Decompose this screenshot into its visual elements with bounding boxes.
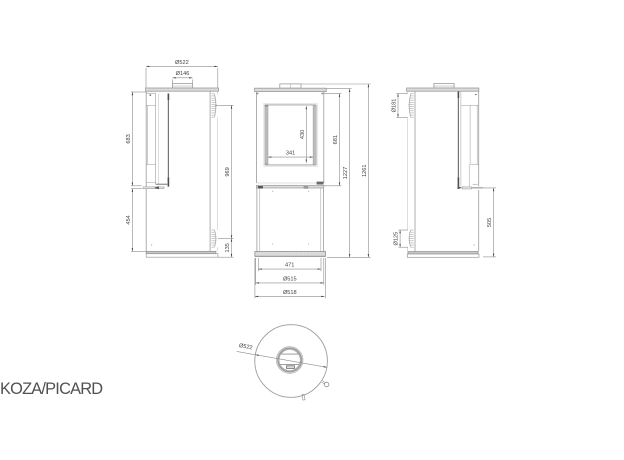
svg-text:430: 430 — [300, 130, 306, 139]
svg-text:341: 341 — [286, 151, 295, 157]
svg-text:454: 454 — [126, 215, 132, 224]
svg-text:Ø515: Ø515 — [283, 276, 297, 282]
svg-text:505: 505 — [487, 218, 493, 227]
svg-text:1227: 1227 — [343, 167, 349, 179]
svg-text:Ø146: Ø146 — [176, 71, 190, 77]
svg-text:Ø518: Ø518 — [283, 290, 297, 296]
svg-text:969: 969 — [225, 167, 231, 176]
svg-text:Ø522: Ø522 — [175, 60, 189, 66]
svg-text:681: 681 — [333, 135, 339, 144]
svg-text:683: 683 — [126, 134, 132, 143]
svg-text:Ø125: Ø125 — [394, 232, 400, 246]
svg-text:1261: 1261 — [362, 164, 368, 176]
svg-text:Ø181: Ø181 — [392, 99, 398, 113]
svg-text:135: 135 — [225, 243, 231, 252]
svg-text:Ø522: Ø522 — [238, 343, 253, 351]
svg-text:471: 471 — [285, 263, 294, 269]
